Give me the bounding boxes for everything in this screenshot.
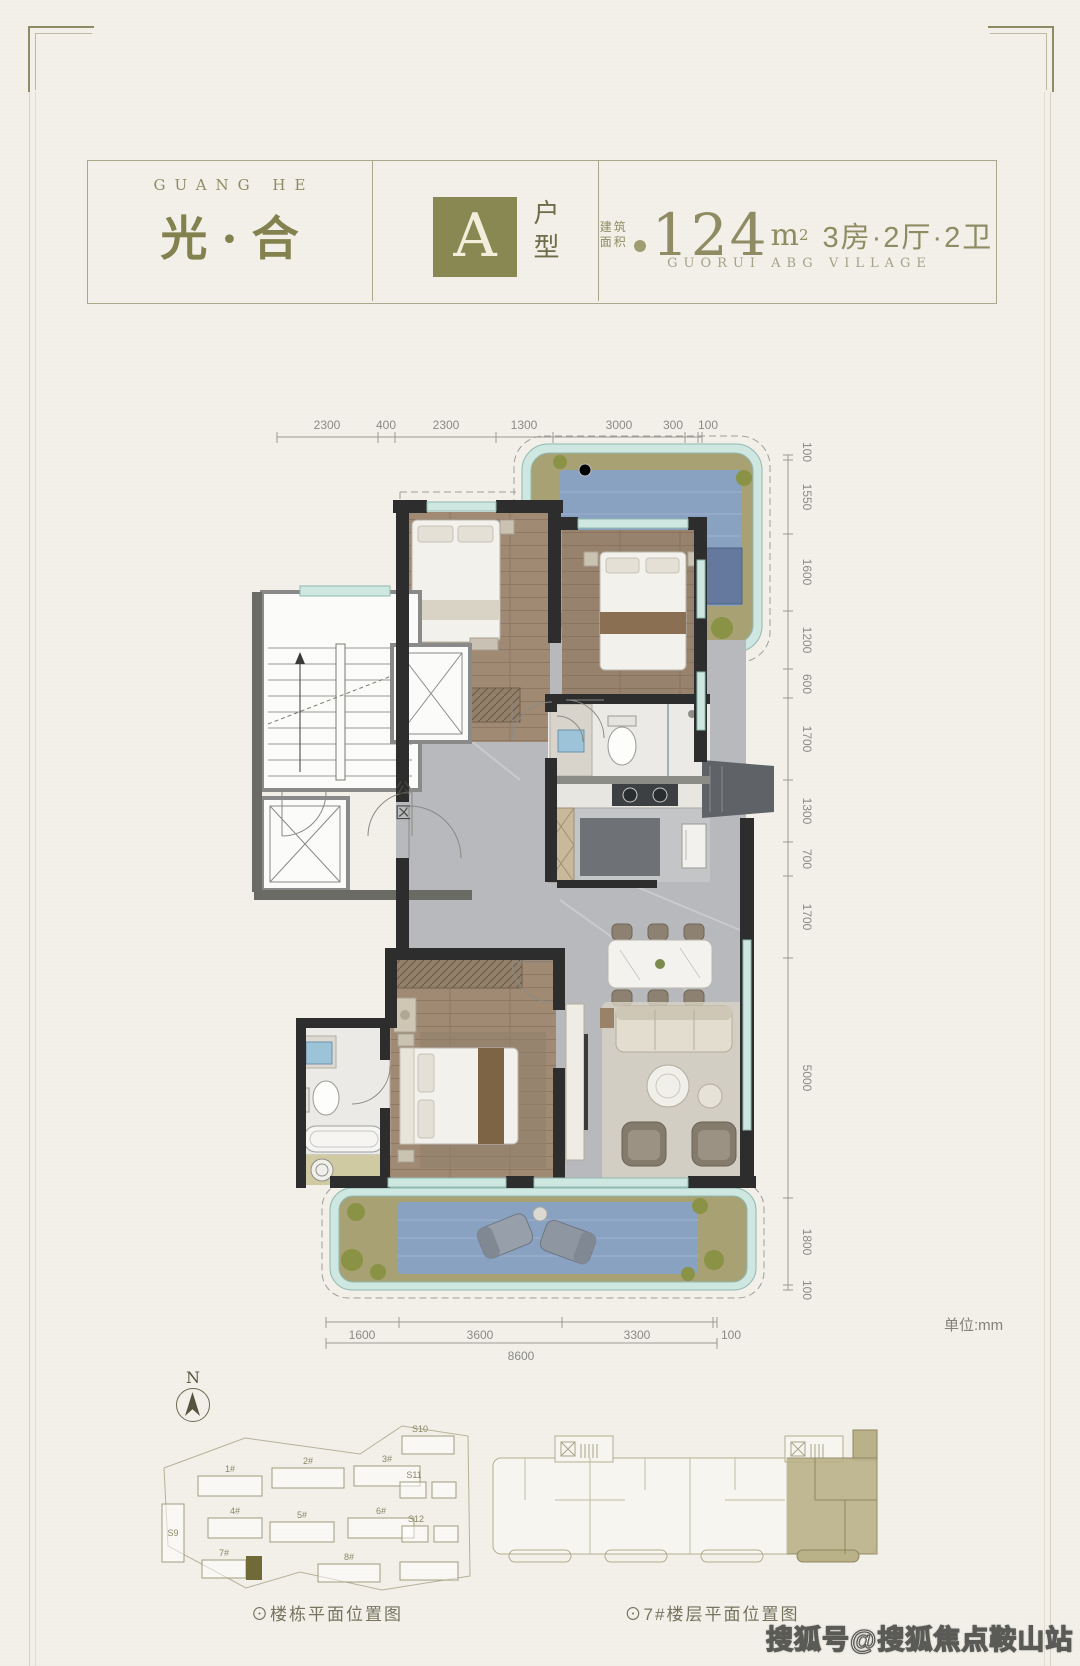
bottom-balcony bbox=[330, 1188, 756, 1290]
dim-bottom-3: 100 bbox=[721, 1328, 741, 1342]
area-prefix-line1: 建筑 bbox=[600, 220, 628, 235]
north-label: N bbox=[176, 1368, 210, 1387]
spa-box bbox=[702, 548, 742, 604]
dim-right-0: 100 bbox=[800, 442, 814, 462]
highlighted-unit bbox=[787, 1458, 877, 1554]
dim-top-3: 1300 bbox=[511, 418, 538, 432]
dim-right-5: 1700 bbox=[800, 726, 814, 753]
label-8: 8# bbox=[344, 1552, 354, 1562]
highlighted-balcony-stub bbox=[797, 1550, 859, 1562]
dining-area bbox=[608, 924, 712, 1006]
dim-right-7: 700 bbox=[800, 849, 814, 869]
balcony-decor bbox=[579, 464, 591, 476]
rooms-summary: 3房·2厅·2卫 bbox=[823, 214, 994, 256]
label-2: 2# bbox=[303, 1456, 313, 1466]
label-6: 6# bbox=[376, 1506, 386, 1516]
unit-letter-badge: A bbox=[433, 197, 517, 277]
toilet bbox=[313, 1081, 339, 1115]
stove bbox=[612, 784, 678, 806]
dim-right-8: 1700 bbox=[800, 904, 814, 931]
main-floorplan: 2300 400 2300 1300 3000 300 100 100 1550… bbox=[230, 392, 830, 1377]
brand-name-cn: 光·合 bbox=[87, 200, 372, 269]
dim-right-2: 1600 bbox=[800, 559, 814, 586]
label-3: 3# bbox=[382, 1454, 392, 1464]
floor-position-diagram bbox=[485, 1400, 885, 1580]
site-plan: 1# 2# 3# 4# 5# 6# 7# 8# S9 S10 S11 S12 bbox=[150, 1398, 480, 1593]
public-area-label: 公区 bbox=[388, 780, 412, 828]
dim-right-9: 5000 bbox=[800, 1065, 814, 1092]
label-s9: S9 bbox=[167, 1528, 178, 1538]
dim-right-4: 600 bbox=[800, 674, 814, 694]
dim-right-3: 1200 bbox=[800, 627, 814, 654]
toilet bbox=[608, 727, 636, 765]
dim-top-1: 400 bbox=[376, 418, 396, 432]
bathroom-2 bbox=[548, 700, 710, 780]
coffee-table bbox=[647, 1065, 689, 1107]
label-s12: S12 bbox=[408, 1514, 424, 1524]
unit-note: 单位:mm bbox=[944, 1314, 1003, 1335]
nightstand bbox=[500, 520, 514, 534]
dim-bottom-2: 3300 bbox=[624, 1328, 651, 1342]
frame-line-right bbox=[1050, 92, 1051, 1666]
dim-total: 8600 bbox=[508, 1349, 535, 1363]
side-table bbox=[600, 1008, 614, 1028]
ac-platform bbox=[702, 760, 774, 818]
dim-bottom-0: 1600 bbox=[349, 1328, 376, 1342]
label-s10: S10 bbox=[412, 1424, 428, 1434]
dim-top-2: 2300 bbox=[433, 418, 460, 432]
sink bbox=[306, 1042, 332, 1064]
washer bbox=[311, 1159, 333, 1181]
sink bbox=[558, 730, 584, 752]
core-window bbox=[300, 586, 390, 596]
area-prefix: 建筑 面积 bbox=[600, 220, 628, 250]
dim-top-6: 100 bbox=[698, 418, 718, 432]
kitchen bbox=[548, 782, 710, 882]
watermark: 搜狐号@搜狐焦点鞍山站 bbox=[766, 1618, 1076, 1657]
bed-runner bbox=[478, 1048, 504, 1144]
site-plan-caption: ⊙楼栋平面位置图 bbox=[247, 1600, 407, 1625]
dim-top-5: 300 bbox=[663, 418, 683, 432]
seal-icon bbox=[634, 240, 646, 252]
dim-right-6: 1300 bbox=[800, 798, 814, 825]
frame-line-left bbox=[29, 92, 30, 1666]
dim-bottom-1: 3600 bbox=[467, 1328, 494, 1342]
bench bbox=[470, 638, 498, 650]
bathtub bbox=[304, 1126, 384, 1152]
floorplan-poster: GUANG HE 光·合 A 户型 建筑 面积 124 m 2 3房·2厅·2卫… bbox=[0, 0, 1080, 1666]
tv bbox=[584, 1034, 588, 1130]
dim-top-0: 2300 bbox=[314, 418, 341, 432]
area-prefix-line2: 面积 bbox=[600, 235, 628, 250]
tv-console bbox=[566, 1004, 584, 1160]
unit-type-label: 户型 bbox=[526, 199, 563, 267]
frame-corner-top-left bbox=[28, 26, 94, 92]
label-7: 7# bbox=[219, 1548, 229, 1558]
dimension-labels-right: 100 1550 1600 1200 600 1700 1300 700 170… bbox=[800, 442, 814, 1300]
header-divider-1 bbox=[372, 161, 373, 301]
label-1: 1# bbox=[225, 1464, 235, 1474]
area-unit-sup: 2 bbox=[799, 226, 809, 244]
dim-right-11: 100 bbox=[800, 1280, 814, 1300]
kitchen-island bbox=[580, 818, 660, 876]
dim-top-4: 3000 bbox=[606, 418, 633, 432]
label-4: 4# bbox=[230, 1506, 240, 1516]
label-5: 5# bbox=[297, 1510, 307, 1520]
dim-right-1: 1550 bbox=[800, 484, 814, 511]
master-bathroom bbox=[298, 1025, 390, 1185]
area-unit: m bbox=[771, 218, 799, 253]
closet bbox=[394, 958, 522, 988]
label-s11: S11 bbox=[406, 1470, 421, 1480]
frame-line-left-inner bbox=[35, 92, 36, 1666]
dimension-labels-top: 2300 400 2300 1300 3000 300 100 bbox=[314, 418, 719, 432]
dimension-labels-bottom: 1600 3600 3300 100 8600 bbox=[349, 1328, 742, 1363]
frame-line-right-inner bbox=[1044, 92, 1045, 1666]
highlighted-building-7 bbox=[246, 1556, 262, 1580]
master-bedroom bbox=[390, 955, 556, 1185]
dim-right-10: 1800 bbox=[800, 1229, 814, 1256]
frame-corner-top-right bbox=[988, 26, 1054, 92]
brand-name-en: GUANG HE bbox=[87, 176, 372, 194]
project-name-en: GUORUI ABG VILLAGE bbox=[598, 256, 995, 271]
